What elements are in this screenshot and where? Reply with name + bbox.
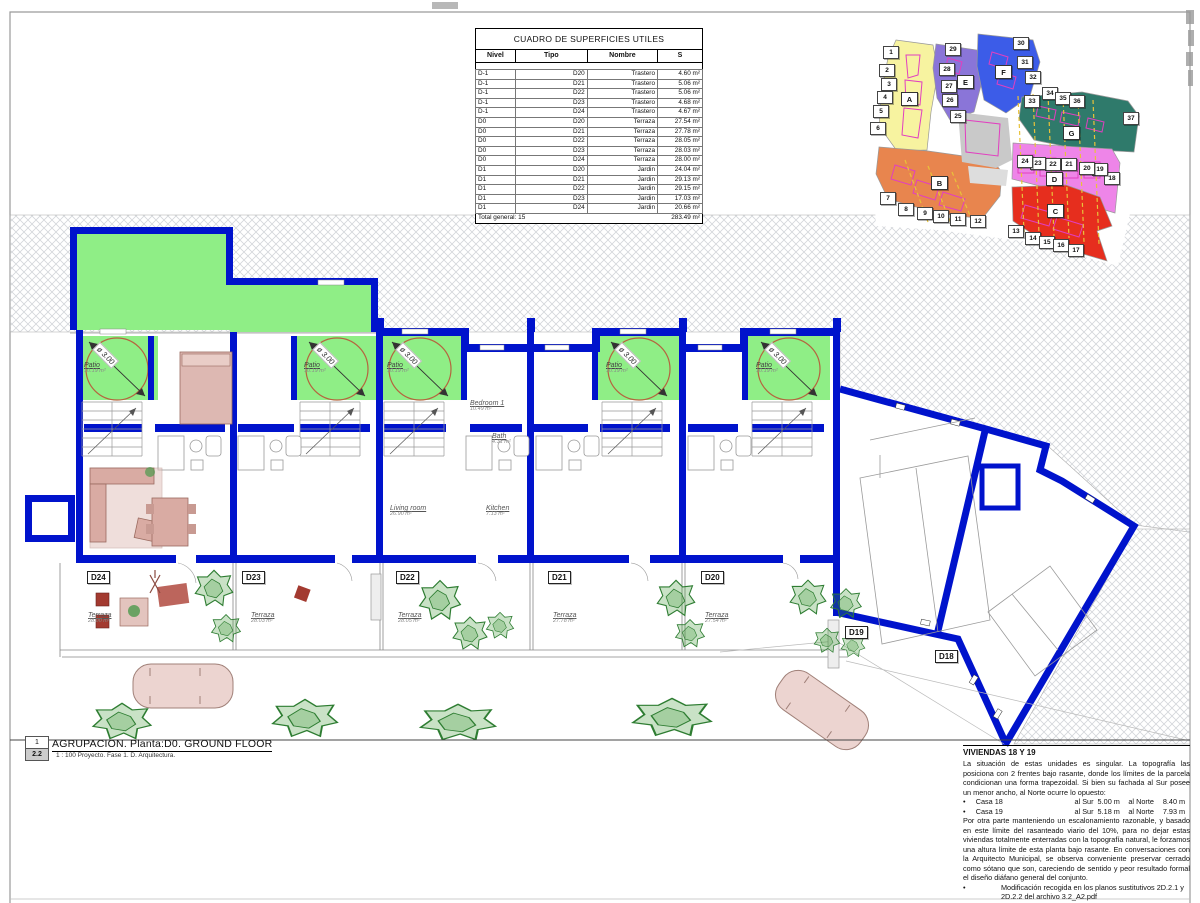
unit-label-d24: D24 bbox=[87, 571, 110, 584]
drawing-title: AGRUPACION. Planta:D0. GROUND FLOOR bbox=[52, 738, 272, 752]
notes-paragraph-1: La situación de estas unidades es singul… bbox=[963, 759, 1190, 797]
map-plot-number-12: 12 bbox=[970, 215, 986, 228]
map-plot-number-8: 8 bbox=[898, 203, 914, 216]
terrace-label-d20: Terraza27.54 m² bbox=[705, 612, 728, 624]
table-row: D0D23Terraza28.03 m² bbox=[476, 146, 703, 156]
table-row: D1D22Jardin29.15 m² bbox=[476, 185, 703, 195]
map-plot-number-17: 17 bbox=[1068, 244, 1084, 257]
table-row: D1D24Jardin20.66 m² bbox=[476, 204, 703, 214]
bath-label: Bath 4.31 m² bbox=[492, 433, 511, 445]
map-plot-number-5: 5 bbox=[873, 105, 889, 118]
map-zone-e: E bbox=[957, 75, 974, 89]
unit-label-d19: D19 bbox=[845, 626, 868, 639]
map-zone-d: D bbox=[1046, 172, 1063, 186]
terrace-label-d23: Terraza28.03 m² bbox=[251, 612, 274, 624]
unit-label-d21: D21 bbox=[548, 571, 571, 584]
map-plot-number-9: 9 bbox=[917, 207, 933, 220]
table-row: D0D20Terraza27.54 m² bbox=[476, 117, 703, 127]
surface-table: CUADRO DE SUPERFICIES UTILES NivelTipoNo… bbox=[475, 28, 703, 224]
table-row: D0D22Terraza28.05 m² bbox=[476, 137, 703, 147]
table-row: D0D24Terraza28.00 m² bbox=[476, 156, 703, 166]
map-plot-number-27: 27 bbox=[941, 80, 957, 93]
table-total-row: Total general: 15283.49 m² bbox=[476, 213, 703, 223]
terrace-label-d21: Terraza27.78 m² bbox=[553, 612, 576, 624]
patio-label-2: Patio10.19 m² bbox=[304, 362, 326, 374]
map-plot-number-21: 21 bbox=[1061, 158, 1077, 171]
unit-label-d22: D22 bbox=[396, 571, 419, 584]
terrace-label-d24: Terraza28.00 m² bbox=[88, 612, 111, 624]
map-zone-b: B bbox=[931, 176, 948, 190]
column-header-nivel: Nivel bbox=[476, 50, 516, 63]
map-plot-number-28: 28 bbox=[939, 63, 955, 76]
map-zone-f: F bbox=[995, 65, 1012, 79]
map-plot-number-13: 13 bbox=[1008, 225, 1024, 238]
table-row: D0D21Terraza27.78 m² bbox=[476, 127, 703, 137]
table-row: D-1D22Trastero5.06 m² bbox=[476, 89, 703, 99]
notes-block: VIVIENDAS 18 Y 19 La situación de estas … bbox=[963, 745, 1190, 902]
map-plot-number-26: 26 bbox=[942, 94, 958, 107]
map-plot-number-31: 31 bbox=[1017, 56, 1033, 69]
sheet-index-number: 1 bbox=[26, 737, 48, 749]
terrace-label-d22: Terraza28.05 m² bbox=[398, 612, 421, 624]
surface-table-title: CUADRO DE SUPERFICIES UTILES bbox=[476, 29, 703, 50]
patio-label-5: Patio10.19 m² bbox=[756, 362, 778, 374]
column-header-nombre: Nombre bbox=[587, 50, 657, 63]
trees bbox=[93, 570, 865, 739]
notes-bullet-final: • Modificación recogida en los planos su… bbox=[963, 883, 1190, 902]
map-plot-number-29: 29 bbox=[945, 43, 961, 56]
notes-paragraph-2: Por otra parte manteniendo un escalonami… bbox=[963, 816, 1190, 882]
column-header-tipo: Tipo bbox=[515, 50, 587, 63]
map-plot-number-7: 7 bbox=[880, 192, 896, 205]
table-row: D1D23Jardin17.03 m² bbox=[476, 194, 703, 204]
table-row: D-1D20Trastero4.60 m² bbox=[476, 70, 703, 80]
map-plot-number-24: 24 bbox=[1017, 155, 1033, 168]
patio-label-1: Patio10.19 m² bbox=[84, 362, 106, 374]
map-zone-c: C bbox=[1047, 204, 1064, 218]
map-plot-number-2: 2 bbox=[879, 64, 895, 77]
sheet-index-code: 2.2 bbox=[26, 749, 48, 760]
table-row: D-1D24Trastero4.67 m² bbox=[476, 108, 703, 118]
notes-title: VIVIENDAS 18 Y 19 bbox=[963, 748, 1190, 758]
map-plot-number-1: 1 bbox=[883, 46, 899, 59]
table-row: D-1D21Trastero5.06 m² bbox=[476, 79, 703, 89]
patio-label-3: Patio10.19 m² bbox=[387, 362, 409, 374]
kitchen-label: Kitchen 7.13 m² bbox=[486, 505, 509, 517]
map-plot-number-32: 32 bbox=[1025, 71, 1041, 84]
map-plot-number-30: 30 bbox=[1013, 37, 1029, 50]
living-room-label: Living room 26.90 m² bbox=[390, 505, 426, 517]
map-plot-number-16: 16 bbox=[1053, 239, 1069, 252]
unit-label-d20: D20 bbox=[701, 571, 724, 584]
drawing-subtitle: 1 : 100 Proyecto. Fase 1. D. Arquitectur… bbox=[56, 752, 175, 759]
notes-bullet-casa-1: •Casa 18al Sur5.00 mal Norte8.40 m bbox=[963, 797, 1190, 806]
drawing-sheet: CUADRO DE SUPERFICIES UTILES NivelTipoNo… bbox=[0, 0, 1200, 903]
map-plot-number-25: 25 bbox=[950, 110, 966, 123]
map-zone-g: G bbox=[1063, 126, 1080, 140]
table-row: D-1D23Trastero4.68 m² bbox=[476, 98, 703, 108]
map-plot-number-37: 37 bbox=[1123, 112, 1139, 125]
map-plot-number-20: 20 bbox=[1079, 162, 1095, 175]
map-plot-number-4: 4 bbox=[877, 91, 893, 104]
map-plot-number-22: 22 bbox=[1045, 158, 1061, 171]
map-plot-number-36: 36 bbox=[1069, 95, 1085, 108]
map-zone-a: A bbox=[901, 92, 918, 106]
column-header-s: S bbox=[658, 50, 703, 63]
table-row: D1D20Jardin24.04 m² bbox=[476, 165, 703, 175]
unit-label-d18: D18 bbox=[935, 650, 958, 663]
bedroom-label: Bedroom 1 10.49 m² bbox=[470, 400, 504, 412]
map-plot-number-3: 3 bbox=[881, 78, 897, 91]
map-plot-number-6: 6 bbox=[870, 122, 886, 135]
notes-bullet-casa-2: •Casa 19al Sur5.18 mal Norte7.93 m bbox=[963, 807, 1190, 816]
map-plot-number-11: 11 bbox=[950, 213, 966, 226]
map-plot-number-10: 10 bbox=[933, 210, 949, 223]
sheet-index-box: 1 2.2 bbox=[25, 736, 49, 761]
map-plot-number-33: 33 bbox=[1024, 95, 1040, 108]
table-row: D1D21Jardin29.13 m² bbox=[476, 175, 703, 185]
patio-label-4: Patio10.19 m² bbox=[606, 362, 628, 374]
unit-label-d23: D23 bbox=[242, 571, 265, 584]
